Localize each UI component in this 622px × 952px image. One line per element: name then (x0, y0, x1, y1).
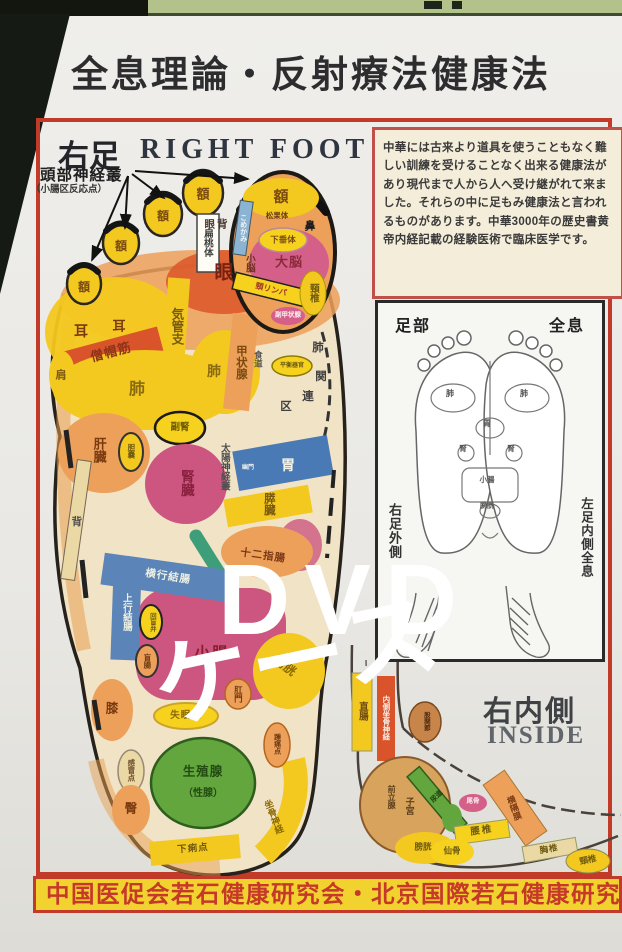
info-box: 中華には古来より道具を使うこともなく難しい訓練を受けることなく出来る健康法があり… (372, 127, 622, 299)
big-toe (231, 172, 335, 332)
inset-label-holography: 全息 (549, 312, 585, 336)
poster-photo: 全息理論・反射療法健康法 (0, 0, 622, 952)
inset-line-art (378, 303, 602, 659)
inset-side-views (397, 586, 550, 657)
inset-diagram: 足部 全息 (375, 300, 605, 662)
inset-label-foot: 足部 (395, 312, 431, 336)
inside-foot-view (352, 645, 621, 873)
footer-banner-text: 中国医促会若石健康研究会・北京国際若石健康研究会認定 (36, 879, 619, 910)
right-foot-sole (45, 170, 345, 875)
inside-view-title-en: INSIDE (487, 722, 585, 750)
inset-caption-outside: 右足外側 (385, 503, 404, 559)
footer-banner: 中国医促会若石健康研究会・北京国際若石健康研究会認定 (33, 876, 622, 913)
inset-caption-inside: 左足内側全息 (577, 497, 596, 578)
